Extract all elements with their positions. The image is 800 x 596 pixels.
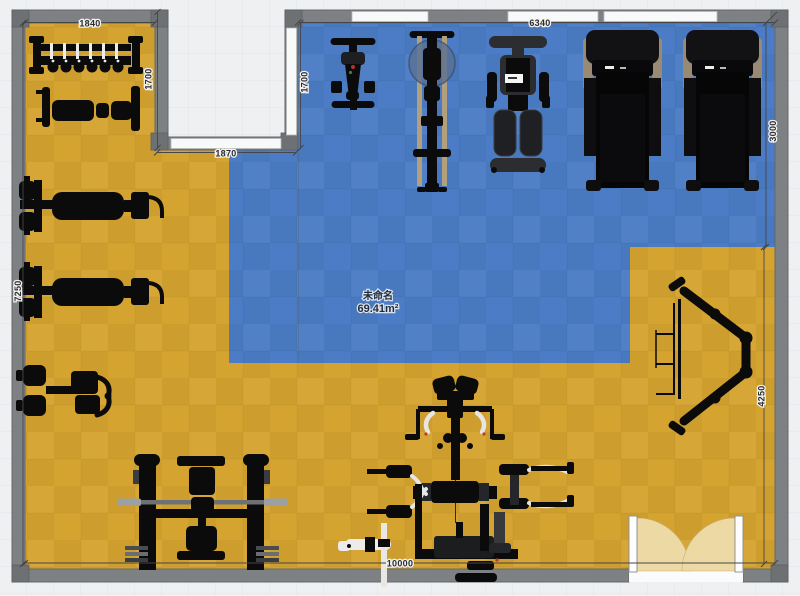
wall-right[interactable] xyxy=(775,10,788,582)
equipment-bench-press-station[interactable]: Bench press rack with barbell xyxy=(117,454,288,570)
wall-post xyxy=(12,10,29,27)
window[interactable] xyxy=(171,139,281,149)
dim-notch-width: 1870 xyxy=(215,149,236,159)
dim-bottom-wall: 10000 xyxy=(387,559,414,569)
dim-wing-top-width: 1840 xyxy=(79,19,100,29)
dim-right-wall-upper: 3000 xyxy=(768,120,778,141)
dim-left-wall: 7250 xyxy=(13,280,23,301)
wall-post xyxy=(151,133,168,150)
door-leaf-right[interactable] xyxy=(735,516,743,572)
window[interactable] xyxy=(287,28,297,135)
dim-hall-left-height: 1700 xyxy=(300,71,310,92)
wall-bottom-left[interactable] xyxy=(12,569,629,582)
window[interactable] xyxy=(352,12,428,22)
dim-right-wall-lower: 4250 xyxy=(757,385,767,406)
floor-plan-canvas: 未命名 69.41m² Dumbb xyxy=(0,0,800,596)
window[interactable] xyxy=(604,12,717,22)
wall-post xyxy=(771,565,788,582)
dim-wing-right-height: 1700 xyxy=(144,68,154,89)
room-area: 69.41m² xyxy=(358,303,399,315)
wall-wing-right[interactable] xyxy=(155,10,168,150)
wall-post xyxy=(12,565,29,582)
window[interactable] xyxy=(508,12,598,22)
wall-post xyxy=(281,133,298,150)
door-leaf-left[interactable] xyxy=(629,516,637,572)
room-name: 未命名 xyxy=(362,289,393,302)
dim-hall-top-width: 6340 xyxy=(529,18,550,28)
